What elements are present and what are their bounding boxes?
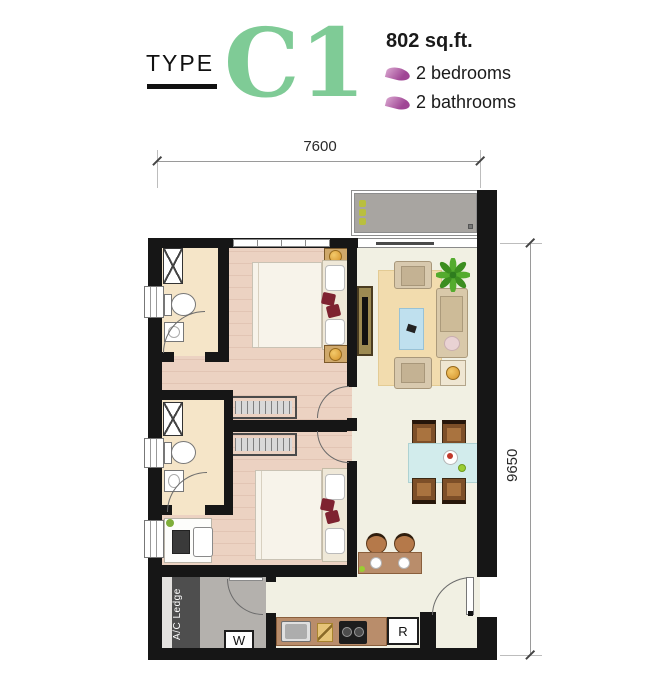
plate-icon: [398, 557, 410, 569]
toilet-bowl: [171, 441, 196, 464]
master-bed-fold: [258, 263, 259, 347]
laptop-icon: [172, 530, 190, 554]
door-hinge: [468, 611, 473, 616]
dimension-ext-right: [480, 150, 481, 188]
wardrobe: [230, 433, 297, 456]
tv-icon: [362, 297, 368, 345]
balcony-drain: [468, 224, 473, 229]
door-leaf-yard: [229, 577, 263, 581]
balcony-plant-icon: [359, 209, 366, 216]
ac-ledge-outer: [162, 577, 172, 652]
area-text: 802 sq.ft.: [386, 30, 473, 53]
balcony-floor: [354, 193, 477, 233]
shower-shaft: [163, 248, 183, 284]
fridge-label: R: [398, 624, 407, 639]
wall-bathroom1-right: [218, 238, 229, 352]
pillow: [325, 265, 345, 291]
shower-shaft: [163, 402, 183, 436]
plate-icon: [370, 557, 382, 569]
wall-living-divider: [347, 461, 357, 567]
wall-yard-right: [266, 577, 276, 582]
dimension-height-line: [530, 243, 531, 655]
type-underline: [147, 84, 217, 89]
bedroom2-bed-fold: [261, 471, 262, 559]
wall-right-upper: [477, 238, 497, 577]
food-icon: [447, 453, 453, 459]
washer-label: W: [233, 633, 245, 648]
bar-stool: [394, 533, 415, 554]
sofa-pillow: [444, 336, 460, 351]
wall-balcony-right: [477, 190, 497, 238]
ac-ledge-label: A/C Ledge: [172, 577, 200, 652]
master-bed: [252, 262, 322, 348]
burner-icon: [342, 627, 352, 637]
pillow: [325, 528, 345, 554]
plant-icon: [436, 258, 470, 292]
plan-header: TYPE C1 802 sq.ft. 2 bedrooms 2 bathroom…: [0, 0, 660, 135]
bar-counter: [358, 552, 422, 574]
wall-living-divider: [347, 238, 357, 387]
bedroom2-bed: [255, 470, 322, 560]
window-bedroom2: [144, 520, 164, 558]
sliding-door-handle: [376, 242, 434, 245]
wall-bathroom2-top: [148, 390, 233, 400]
lamp-icon: [329, 348, 342, 361]
dimension-ext-bottom: [500, 655, 542, 656]
dimension-height-label: 9650: [504, 425, 522, 505]
window-bathroom1: [144, 286, 164, 318]
bar-plant-icon: [359, 566, 365, 572]
balcony-plant-icon: [359, 218, 366, 225]
dimension-width-line: [157, 161, 481, 162]
armchair-seat: [401, 266, 425, 286]
feature-bathrooms: 2 bathrooms: [386, 92, 516, 113]
window-master: [233, 239, 330, 247]
pillow: [325, 474, 345, 500]
wall-bottom: [148, 648, 497, 660]
dimension-ext-top: [500, 243, 542, 244]
unit-code: C1: [224, 16, 366, 111]
fridge-box: R: [387, 617, 419, 645]
feature-label: 2 bathrooms: [416, 92, 516, 113]
window-bathroom2: [144, 438, 164, 468]
pillow: [325, 319, 345, 345]
dining-table: [408, 443, 478, 483]
feature-label: 2 bedrooms: [416, 63, 511, 84]
wall-bedroom2-bottom: [148, 565, 357, 577]
dimension-width-label: 7600: [280, 138, 360, 155]
armchair-seat: [401, 363, 425, 383]
desk-chair: [193, 527, 213, 557]
lamp-icon: [446, 366, 460, 380]
cutting-board-icon: [317, 623, 333, 642]
wall-bathroom2-bottom: [205, 505, 233, 515]
leaf-icon: [385, 65, 411, 82]
kitchen-sink-basin: [285, 624, 307, 639]
dimension-ext-left: [157, 150, 158, 188]
door-leaf-entrance: [466, 577, 474, 615]
dining-chair: [442, 478, 466, 504]
wardrobe: [230, 396, 297, 419]
type-label: TYPE: [146, 50, 214, 77]
wall-living-divider: [347, 418, 357, 431]
wall-bathroom2-right: [224, 390, 233, 515]
wall-bathroom1-bottom: [148, 352, 174, 362]
dining-chair: [412, 478, 436, 504]
leaf-icon: [385, 94, 411, 111]
bar-stool: [366, 533, 387, 554]
feature-bedrooms: 2 bedrooms: [386, 63, 511, 84]
desk-plant-icon: [166, 519, 174, 527]
burner-icon: [354, 627, 364, 637]
wall-bathroom1-bottom: [205, 352, 229, 362]
wall-entry-stub: [420, 612, 436, 650]
sofa-cushion: [440, 296, 463, 332]
washer-box: W: [224, 630, 254, 650]
floorplan-page: { "header": { "type_label": "TYPE", "uni…: [0, 0, 660, 700]
balcony-plant-icon: [359, 200, 366, 207]
food-icon: [458, 464, 466, 472]
wall-yard-right: [266, 613, 276, 650]
